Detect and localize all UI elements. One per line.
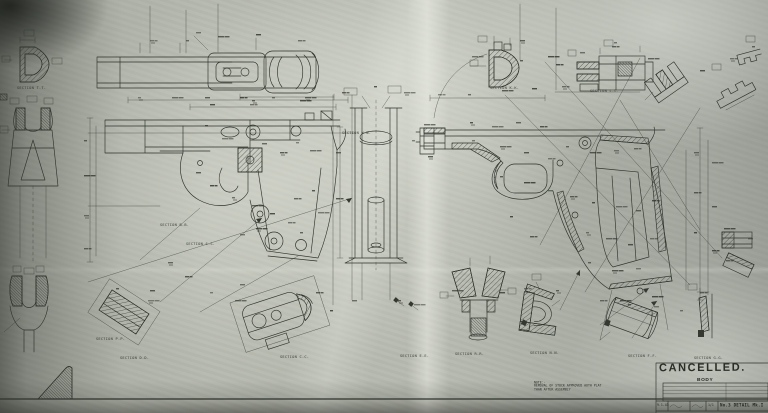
top-plan-view [97, 4, 334, 100]
detail-u-bracket-section [519, 274, 561, 335]
detail-castle-bracket [644, 62, 688, 103]
drawing-linework [0, 0, 768, 413]
center-section-view [337, 86, 434, 300]
detail-section-l-l [568, 40, 653, 91]
detail-front-view-lower-left [4, 266, 48, 352]
blueprint-photo: CANCELLED. BODY NOTE:- REMOVAL OF STOCK … [0, 0, 768, 413]
detail-section-c-c [230, 276, 331, 356]
detail-funnel-section [440, 256, 516, 340]
detail-front-view-upper-left [0, 96, 58, 262]
left-side-elevation-view [87, 95, 355, 312]
detail-section-p-p [88, 279, 160, 345]
sheet-border-and-title-block [0, 363, 768, 413]
detail-clip-pieces [712, 36, 763, 112]
detail-section-t-t [0, 30, 62, 100]
detail-section-k-k [470, 36, 519, 87]
misc-small-marks [393, 297, 527, 326]
